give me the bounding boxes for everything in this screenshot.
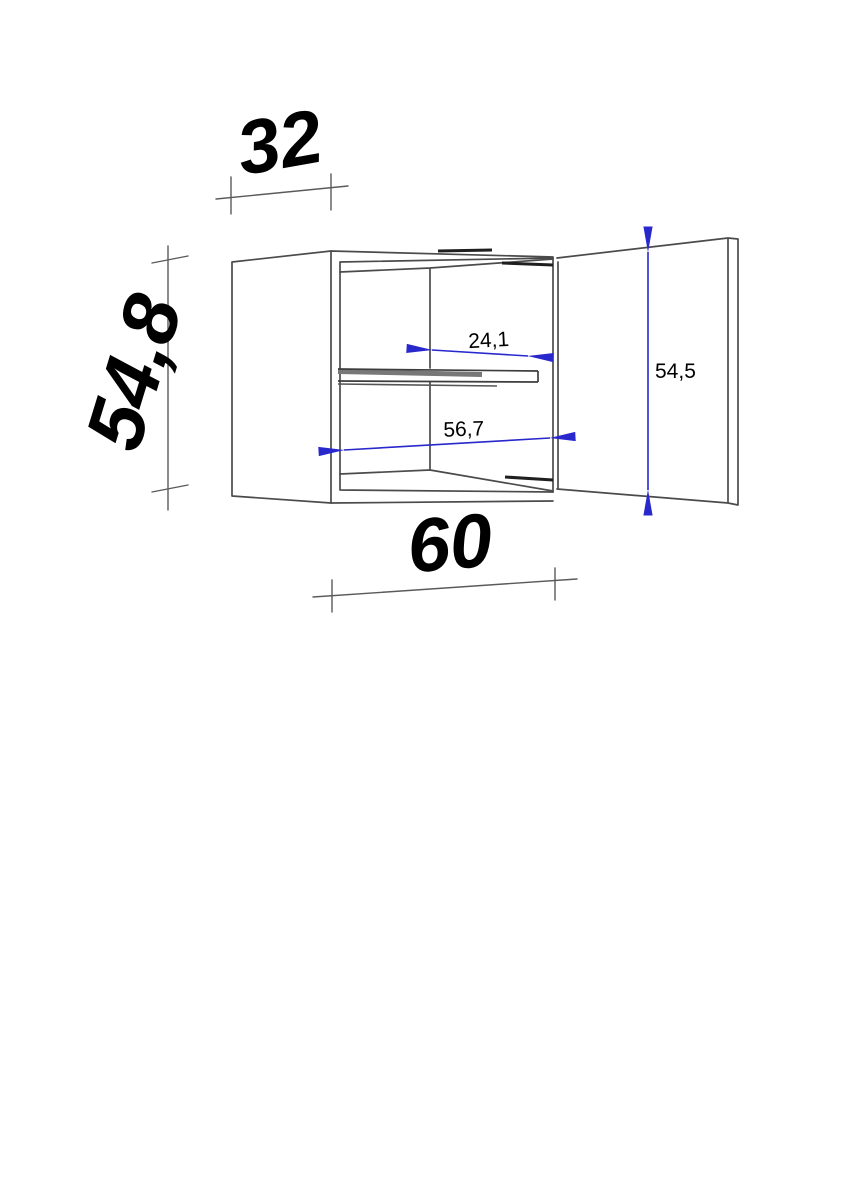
dimension-label-interior-depth: 24,1 xyxy=(468,328,510,353)
dimension-label-width: 60 xyxy=(404,498,496,590)
carcass-left-side-panel xyxy=(232,251,331,503)
shelf-under-edge xyxy=(338,384,497,386)
dimension-label-height: 54,8 xyxy=(68,284,199,459)
dimension-label-depth: 32 xyxy=(231,94,329,192)
technical-drawing-page: 24,1 56,7 54,5 32 54,8 60 xyxy=(0,0,848,1200)
dimension-label-interior-width: 56,7 xyxy=(443,417,485,441)
outer-dimension-labels: 32 54,8 60 xyxy=(68,94,495,590)
cabinet-carcass xyxy=(232,251,553,503)
dimension-label-door-height: 54,5 xyxy=(655,360,696,383)
outer-dimensions xyxy=(152,174,577,612)
top-edge-dark-segment xyxy=(438,250,492,251)
carcass-dark-edges xyxy=(438,250,553,480)
dimension-height-tick-top xyxy=(152,256,188,263)
cabinet-dimension-drawing: 24,1 56,7 54,5 32 54,8 60 xyxy=(0,0,848,1200)
shelf-shadow-band xyxy=(338,372,482,375)
cabinet-shelf xyxy=(338,369,538,386)
dimension-height-tick-bottom xyxy=(152,485,188,492)
dimension-depth-line xyxy=(216,186,348,199)
interior-top-dark-segment xyxy=(502,263,553,265)
interior-bottom-dark-segment xyxy=(505,477,553,480)
carcass-front-outline xyxy=(331,251,553,503)
